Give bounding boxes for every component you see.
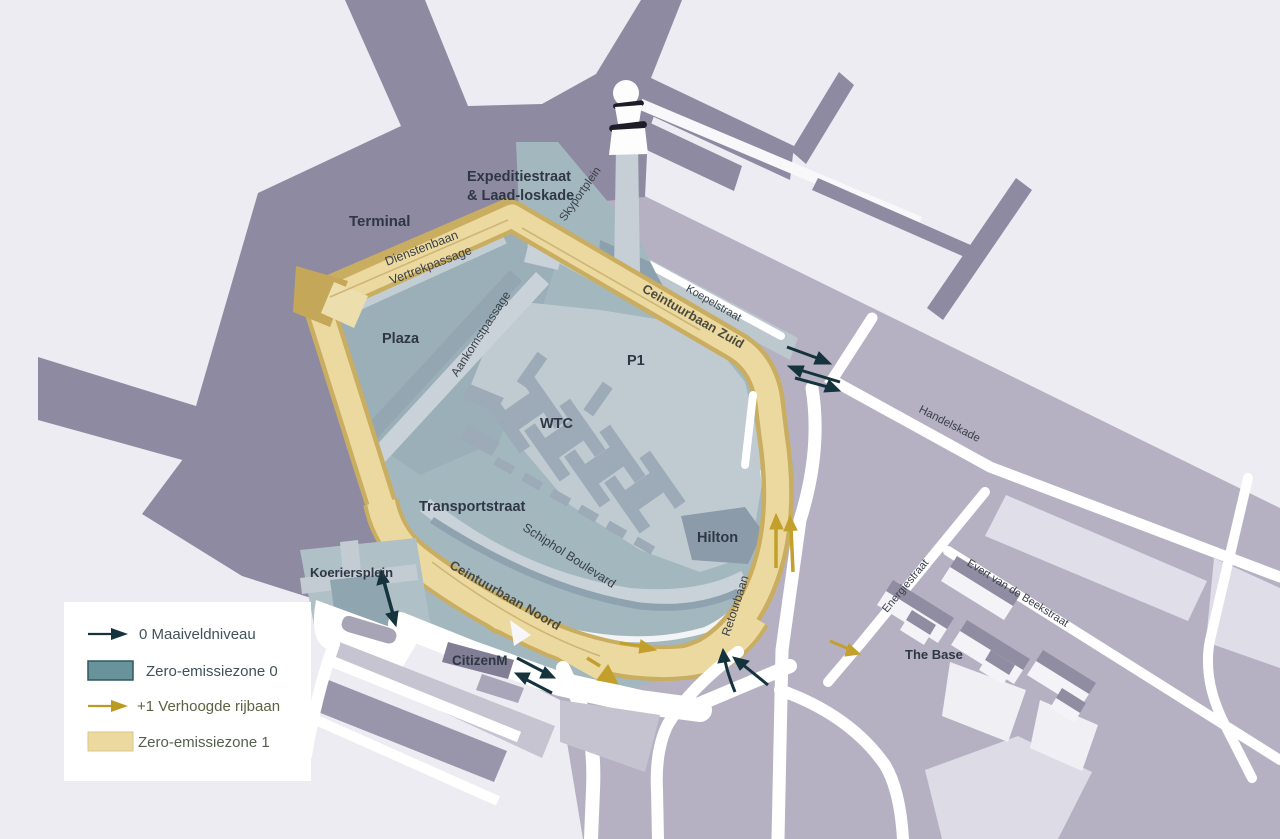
svg-text:+1 Verhoogde rijbaan: +1 Verhoogde rijbaan [137, 698, 280, 715]
svg-text:Plaza: Plaza [382, 331, 420, 347]
svg-text:P1: P1 [627, 353, 645, 369]
svg-text:The Base: The Base [905, 647, 963, 662]
svg-text:0 Maaiveldniveau: 0 Maaiveldniveau [139, 626, 256, 643]
svg-text:Transportstraat: Transportstraat [419, 499, 526, 515]
svg-text:Expeditiestraat: Expeditiestraat [467, 169, 571, 185]
svg-text:Koeriersplein: Koeriersplein [310, 565, 393, 580]
svg-text:Hilton: Hilton [697, 530, 738, 546]
svg-text:Terminal: Terminal [349, 213, 410, 230]
svg-text:Zero-emissiezone 1: Zero-emissiezone 1 [138, 734, 270, 751]
svg-text:CitizenM: CitizenM [452, 653, 508, 668]
svg-text:WTC: WTC [540, 416, 574, 432]
svg-text:Zero-emissiezone 0: Zero-emissiezone 0 [146, 663, 278, 680]
svg-text:& Laad-loskade: & Laad-loskade [467, 188, 574, 204]
